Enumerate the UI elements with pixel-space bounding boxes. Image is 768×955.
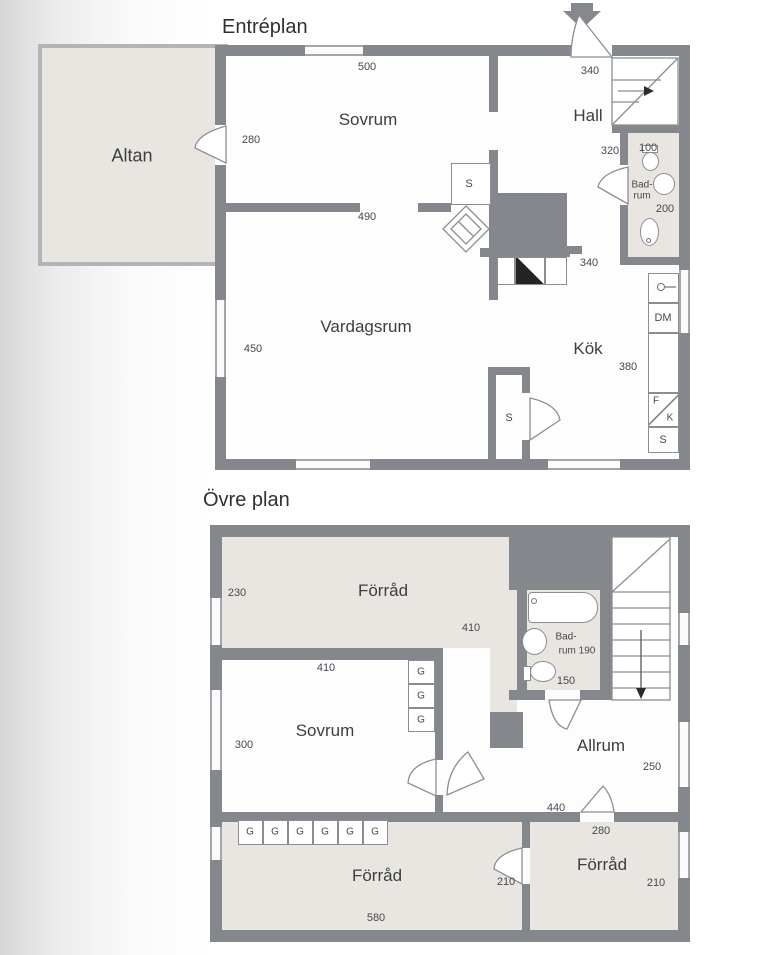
chimney [497, 193, 567, 253]
freezer-label: F [653, 396, 659, 407]
wall-segment [210, 525, 690, 537]
window [679, 270, 690, 333]
entrance-arrow-icon [563, 3, 601, 29]
floor1-title: Entréplan [222, 16, 308, 39]
wall-segment [215, 45, 226, 470]
wall-segment [620, 205, 628, 257]
dimension-label: 450 [244, 343, 262, 355]
closet-label-s: S [505, 412, 512, 424]
sink-icon [657, 283, 665, 291]
wall-segment [614, 812, 678, 822]
window [678, 613, 690, 645]
dimension-label: 150 [557, 675, 575, 687]
room-label-badrum: Bad- [555, 632, 576, 643]
wall-segment [522, 884, 530, 930]
dimension-label: 280 [592, 825, 610, 837]
dimension-label: 340 [580, 257, 598, 269]
wardrobe-label-g: G [346, 827, 354, 838]
chimney [490, 712, 523, 748]
wall-segment [435, 660, 443, 760]
door-opening [215, 125, 226, 165]
bathtub-icon [528, 592, 598, 623]
room-label-sovrum: Sovrum [339, 110, 398, 130]
room-label-altan: Altan [111, 146, 152, 167]
floor2-forrad-top [509, 590, 517, 648]
fridge-label: K [667, 413, 674, 424]
room-label-allrum: Allrum [577, 736, 625, 756]
room-label-badrum: rum 190 [559, 646, 596, 657]
wall-segment [210, 930, 690, 942]
drain-icon [646, 238, 651, 243]
floor2-title: Övre plan [203, 489, 290, 512]
wardrobe-label-g: G [417, 667, 425, 678]
window [210, 598, 222, 645]
closet-label-s: S [465, 178, 472, 190]
wall-segment [418, 203, 451, 212]
dimension-label: 500 [358, 61, 376, 73]
floor2-forrad-br [530, 822, 678, 930]
counter [648, 333, 679, 393]
wardrobe-label-g: G [296, 827, 304, 838]
wall-segment [215, 45, 572, 56]
washbasin-icon [653, 173, 675, 195]
wall-segment [226, 203, 360, 212]
wardrobe-label-g: G [271, 827, 279, 838]
floorplan-page: Entréplan Övre plan [0, 0, 768, 955]
wall-segment [600, 590, 612, 700]
room-label-vardagsrum: Vardagsrum [320, 317, 411, 337]
dimension-label: 210 [647, 877, 665, 889]
dimension-label: 410 [317, 662, 335, 674]
room-label-forrad: Förråd [358, 581, 408, 601]
wardrobe-label-g: G [246, 827, 254, 838]
wall-segment [480, 248, 570, 257]
dimension-label: 440 [547, 802, 565, 814]
wall-segment [489, 56, 498, 112]
room-label-kok: Kök [573, 339, 602, 359]
room-label-badrum: Bad- [631, 180, 652, 191]
door-opening [620, 165, 628, 205]
counter [545, 257, 567, 285]
window [305, 45, 363, 56]
dimension-label: 200 [656, 203, 674, 215]
floor1-house [215, 45, 690, 470]
dimension-label: 340 [581, 65, 599, 77]
dimension-label: 100 [639, 142, 657, 154]
dimension-label: 580 [367, 912, 385, 924]
tap-icon [531, 598, 537, 604]
wardrobe-label-g: G [371, 827, 379, 838]
room-label-forrad: Förråd [577, 855, 627, 875]
wall-segment [522, 367, 530, 393]
wall-segment [580, 690, 612, 700]
dimension-label: 490 [358, 211, 376, 223]
dimension-label: 210 [497, 876, 515, 888]
wall-segment [488, 367, 496, 459]
room-label-hall: Hall [573, 106, 602, 126]
toilet-icon [530, 661, 556, 682]
washbasin-icon [522, 628, 547, 655]
window [548, 459, 620, 470]
wall-segment [620, 257, 690, 265]
dimension-label: 250 [643, 761, 661, 773]
wall-segment [522, 440, 530, 459]
dimension-label: 320 [601, 145, 619, 157]
window [210, 690, 222, 770]
room-label-sovrum: Sovrum [296, 721, 355, 741]
dishwasher-label: DM [654, 312, 671, 324]
wardrobe-label-g: G [321, 827, 329, 838]
wall-segment [509, 690, 545, 700]
window [210, 827, 222, 860]
wall-segment [509, 525, 612, 590]
counter [497, 257, 515, 285]
dimension-label: 280 [242, 134, 260, 146]
window [678, 832, 690, 878]
toilet-icon [642, 152, 659, 171]
wardrobe-label-g: G [417, 691, 425, 702]
room-label-badrum: rum [633, 191, 650, 202]
closet-label-s: S [659, 434, 666, 446]
wardrobe-label-g: G [417, 715, 425, 726]
stove-icon [515, 257, 545, 285]
wall-segment [620, 125, 628, 165]
window [215, 300, 226, 377]
dimension-label: 230 [228, 587, 246, 599]
floor2-forrad-top [490, 648, 517, 712]
window [678, 722, 690, 787]
dimension-label: 380 [619, 361, 637, 373]
wall-segment [222, 648, 443, 660]
wall-segment [522, 822, 530, 848]
room-label-forrad: Förråd [352, 866, 402, 886]
window [296, 459, 370, 470]
dimension-label: 410 [462, 622, 480, 634]
dimension-label: 300 [235, 739, 253, 751]
wall-segment [435, 795, 443, 812]
